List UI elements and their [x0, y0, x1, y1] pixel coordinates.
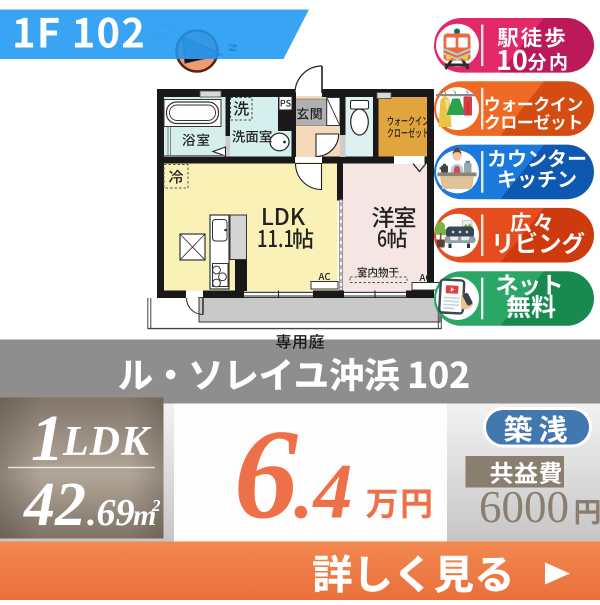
svg-text:42: 42	[23, 471, 86, 539]
svg-text:LDK: LDK	[62, 419, 152, 465]
svg-text:.69: .69	[87, 492, 135, 534]
svg-text:6: 6	[234, 404, 298, 546]
svg-text:6000: 6000	[479, 482, 569, 532]
svg-text:.4: .4	[294, 448, 353, 535]
svg-text:1: 1	[31, 402, 64, 475]
svg-text:2: 2	[151, 496, 161, 515]
